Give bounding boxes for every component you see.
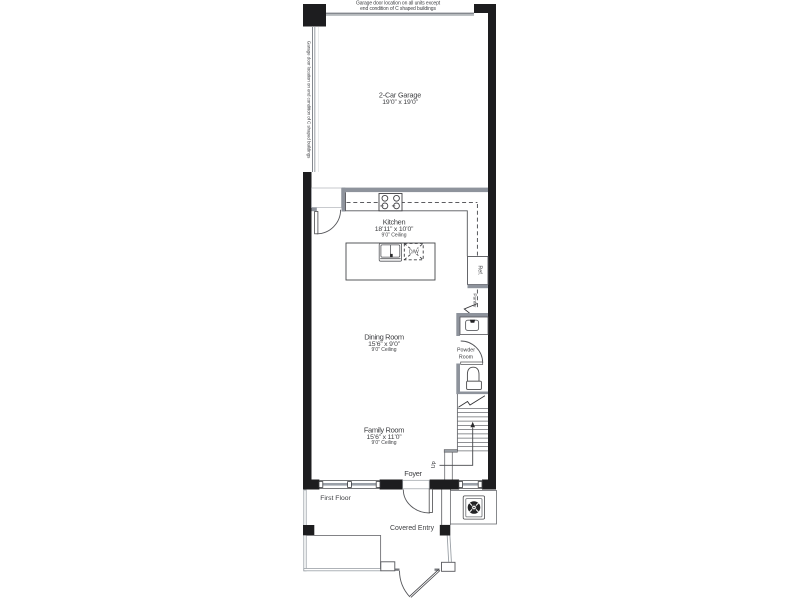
svg-text:end condition of C shaped buil: end condition of C shaped buildings bbox=[360, 6, 436, 12]
svg-text:9’0” Ceiling: 9’0” Ceiling bbox=[371, 440, 396, 446]
svg-text:First Floor: First Floor bbox=[320, 495, 351, 502]
svg-text:Covered Entry: Covered Entry bbox=[390, 525, 435, 532]
svg-text:Powder: Powder bbox=[457, 347, 475, 353]
svg-text:Ref.: Ref. bbox=[477, 265, 483, 275]
svg-text:9’0” Ceiling: 9’0” Ceiling bbox=[371, 347, 396, 353]
svg-text:Foyer: Foyer bbox=[404, 469, 422, 478]
svg-text:Up: Up bbox=[431, 461, 437, 468]
svg-text:Room: Room bbox=[459, 355, 474, 361]
svg-text:D/W: D/W bbox=[409, 249, 419, 255]
svg-text:9’0” Ceiling: 9’0” Ceiling bbox=[381, 233, 406, 239]
svg-text:19’0” x 19’0”: 19’0” x 19’0” bbox=[382, 99, 418, 106]
svg-text:Garage door location on end co: Garage door location on end condition of… bbox=[307, 41, 312, 159]
